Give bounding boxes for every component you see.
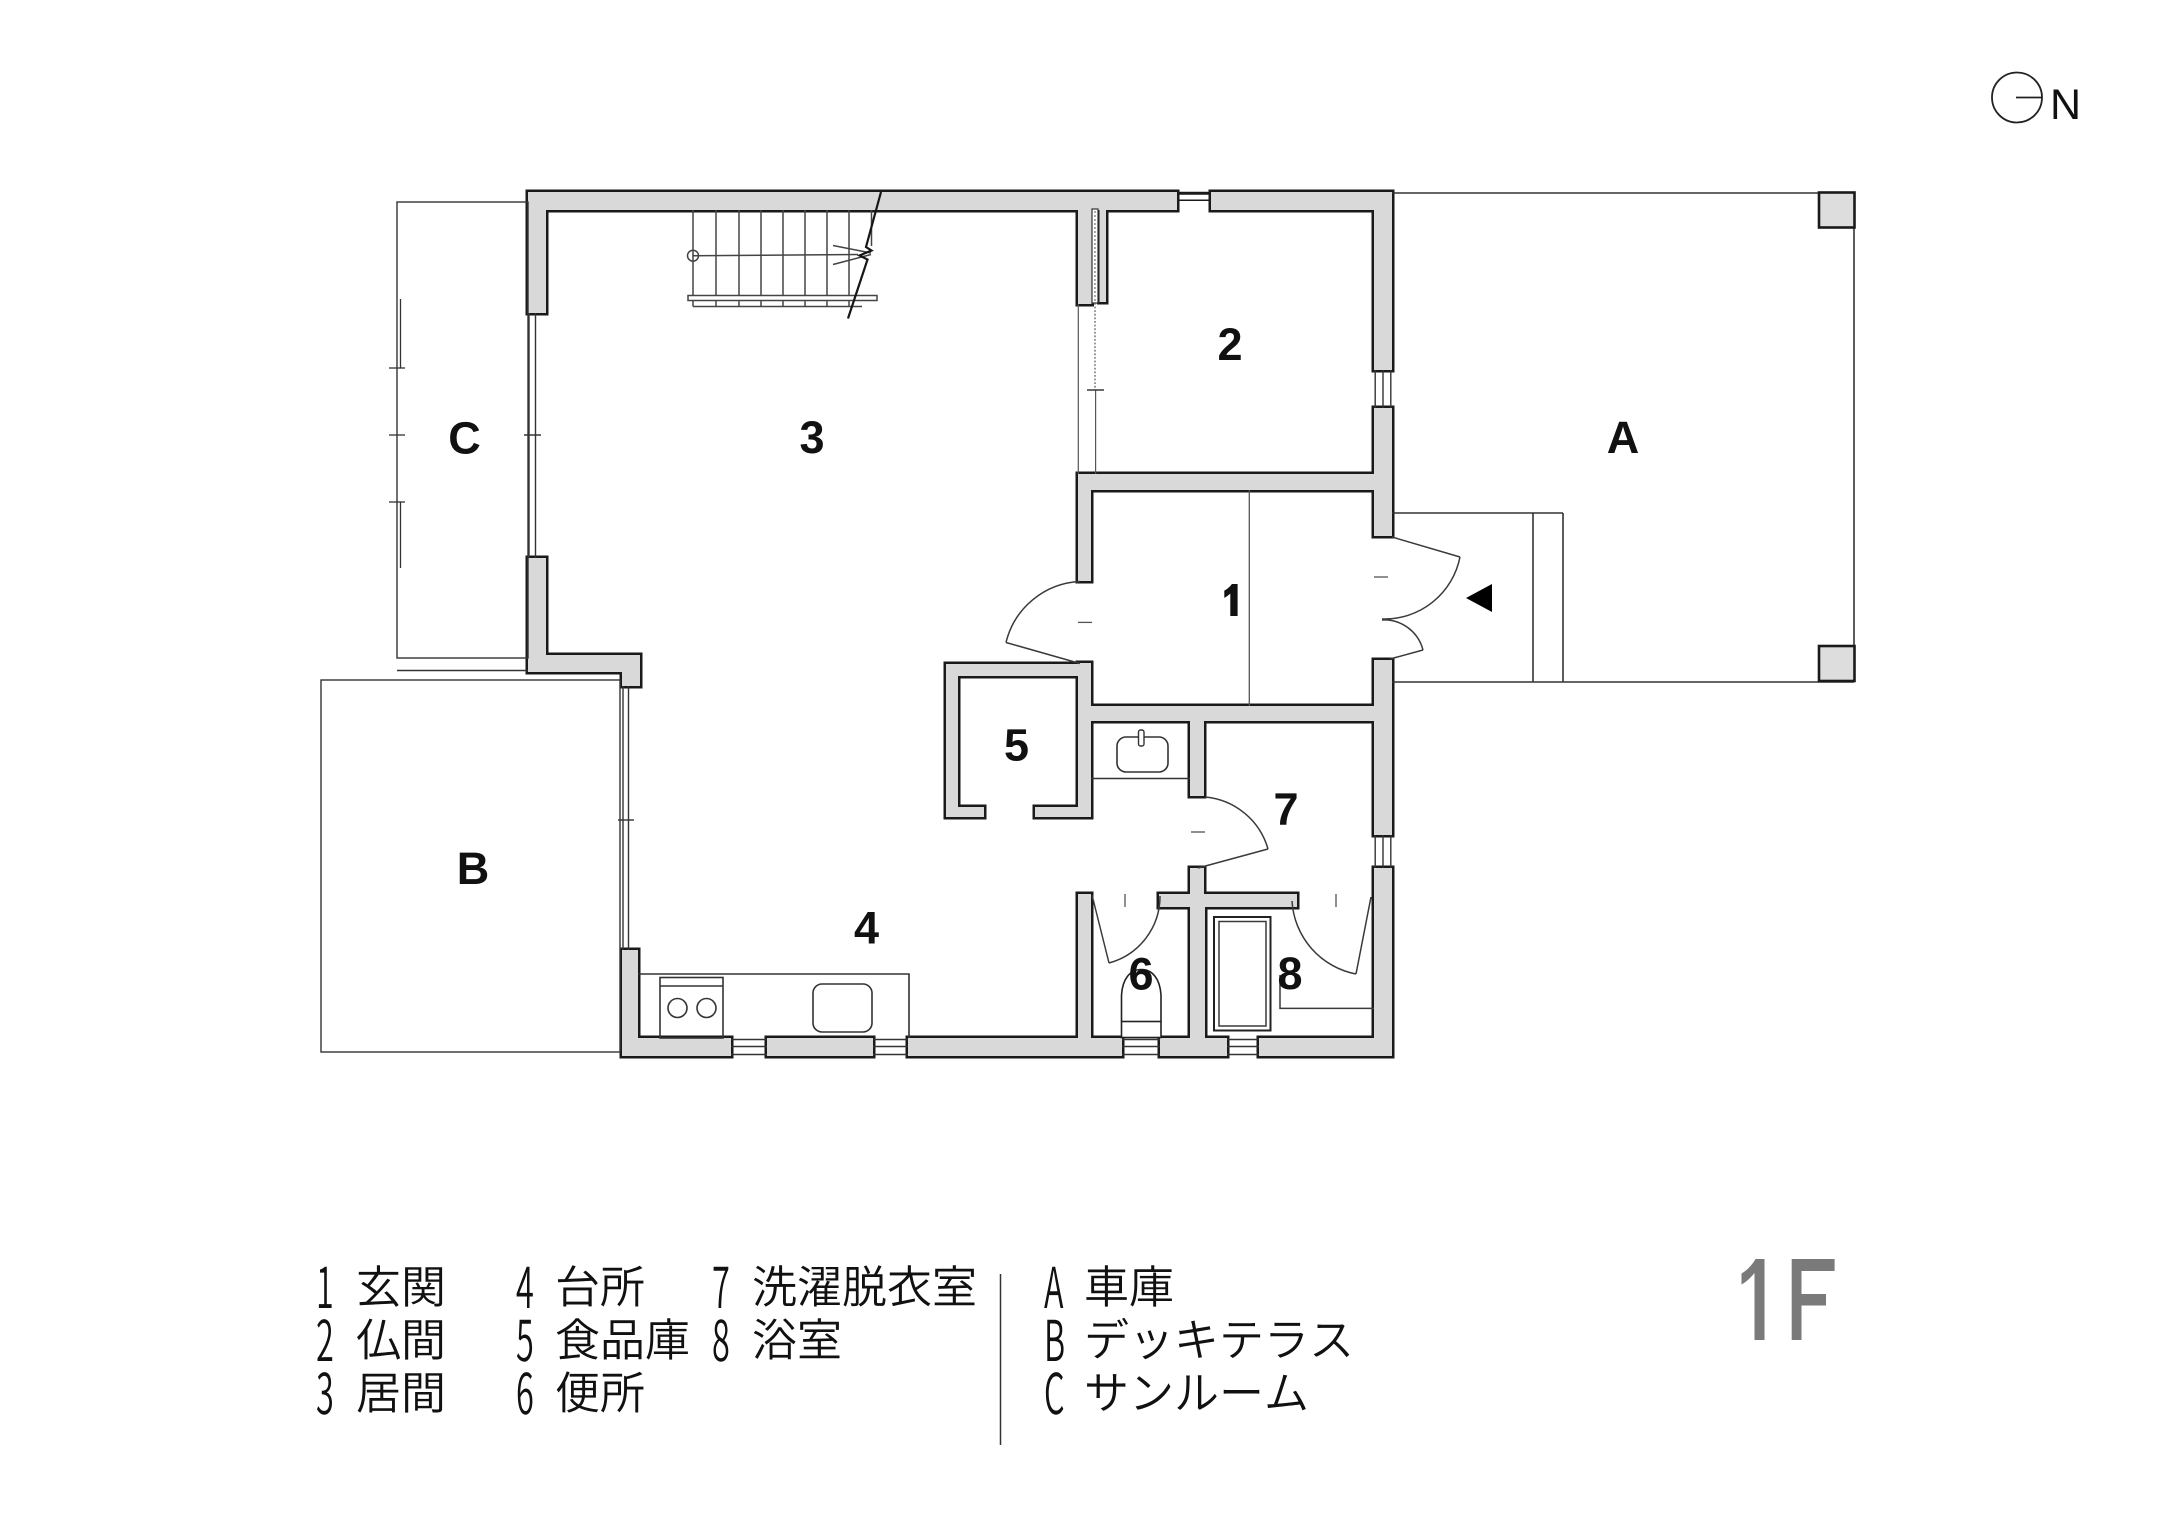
- svg-text:2: 2: [1217, 319, 1242, 370]
- svg-text:6: 6: [1128, 949, 1153, 1000]
- svg-text:8: 8: [1277, 948, 1302, 999]
- svg-text:C: C: [448, 413, 481, 464]
- svg-text:B: B: [457, 843, 490, 894]
- svg-text:N: N: [2050, 81, 2081, 129]
- svg-text:4: 4: [854, 903, 879, 954]
- svg-text:7: 7: [1273, 784, 1298, 835]
- svg-text:3: 3: [799, 412, 824, 463]
- svg-text:5: 5: [1004, 720, 1029, 771]
- svg-text:A: A: [1607, 412, 1640, 463]
